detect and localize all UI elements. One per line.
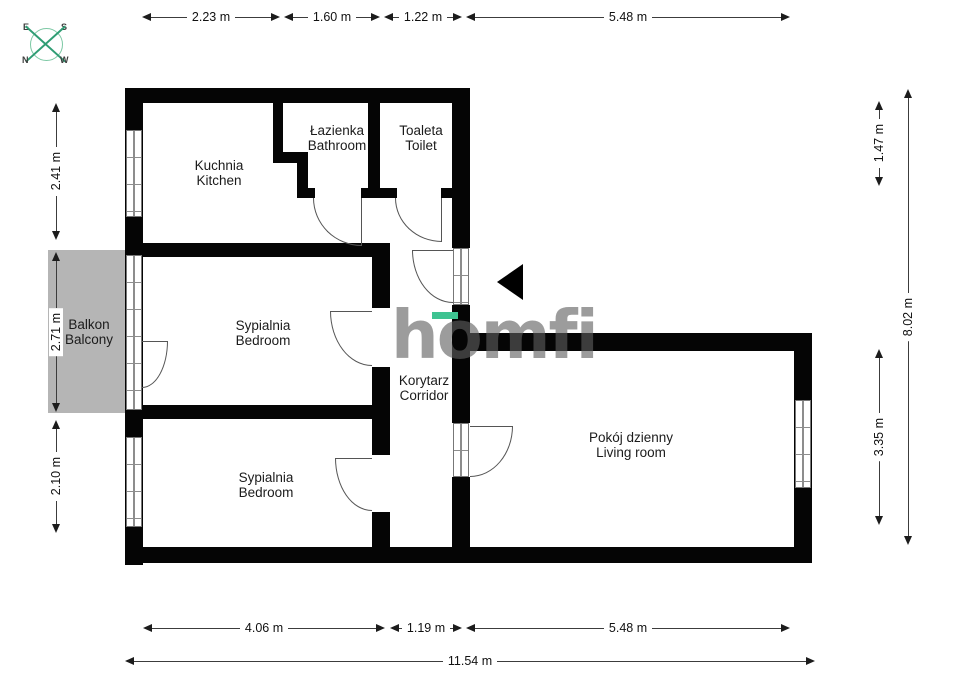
wall-toilet-bottom [441,188,463,198]
dim-bottom-corridor: 1.19 m [390,620,462,636]
dim-label: 5.48 m [604,621,652,635]
dim-total-width: 11.54 m [125,653,815,669]
room-name-en: Bedroom [196,485,336,500]
dim-label: 3.35 m [872,413,886,461]
homfi-logo-accent-bar [432,312,458,319]
dim-arrow-down-icon [904,536,912,545]
room-name-en: Toilet [381,138,461,153]
room-name-pl: Sypialnia [196,470,336,485]
dim-arrow-right-icon [371,13,380,21]
kitchen-window [126,130,142,217]
dim-line [879,110,880,119]
dim-arrow-left-icon [143,624,152,632]
wall-bedroom-corridor [372,512,390,559]
dim-line [235,17,271,18]
dim-bottom-living: 5.48 m [466,620,790,636]
room-label-kitchen: Kuchnia Kitchen [149,158,289,188]
dim-label: 2.41 m [49,147,63,195]
balcony-door-swing [142,341,168,388]
compass-north-label: N [22,55,29,65]
room-name-pl: Sypialnia [193,318,333,333]
dim-line [475,17,604,18]
room-name-pl: Pokój dzienny [556,430,706,445]
room-name-pl: Balkon [48,317,130,332]
wall-bedroom-corridor [372,243,390,308]
dim-arrow-right-icon [376,624,385,632]
room-label-living-room: Pokój dzienny Living room [556,430,706,460]
dim-line [151,17,187,18]
homfi-logo: homfi [391,296,597,374]
dim-line [356,17,371,18]
room-name-pl: Łazienka [287,123,387,138]
dim-left-kitchen: 2.41 m [48,103,64,240]
room-name-pl: Toaleta [381,123,461,138]
bedroom1-door [330,311,372,366]
dim-arrow-left-icon [466,624,475,632]
dim-top-bathroom: 1.60 m [284,9,380,25]
dim-arrow-right-icon [806,657,815,665]
toilet-door [395,198,442,242]
floor-plan: E S N W Kuchnia Kitchen [0,0,960,679]
compass-rose-icon: E S N W [18,22,76,70]
dim-arrow-up-icon [52,252,60,261]
dim-line [56,112,57,147]
dim-label: 2.10 m [49,452,63,500]
compass-west-label: W [60,55,69,65]
dim-arrow-right-icon [271,13,280,21]
dim-line [134,661,443,662]
dim-label: 2.23 m [187,10,235,24]
dim-label: 5.48 m [604,10,652,24]
dim-label: 8.02 m [901,293,915,341]
dim-arrow-down-icon [52,403,60,412]
dim-arrow-up-icon [52,420,60,429]
dim-arrow-left-icon [142,13,151,21]
room-name-en: Living room [556,445,706,460]
dim-line [56,196,57,231]
dim-line [288,628,376,629]
dim-arrow-right-icon [781,624,790,632]
room-name-en: Corridor [374,388,474,403]
dim-line [497,661,806,662]
dim-top-toilet: 1.22 m [384,9,462,25]
dim-line [475,628,604,629]
dim-left-bedroom2: 2.10 m [48,420,64,533]
dim-arrow-up-icon [875,101,883,110]
room-label-bedroom2: Sypialnia Bedroom [196,470,336,500]
dim-arrow-up-icon [904,89,912,98]
dim-right-total-height: 8.02 m [900,89,916,545]
wall-right-upper [452,88,470,248]
dim-right-toilet: 1.47 m [871,101,887,186]
dim-arrow-down-icon [875,177,883,186]
dim-label: 1.22 m [399,10,447,24]
room-name-pl: Kuchnia [149,158,289,173]
entrance-arrow-icon [497,264,523,300]
room-label-bathroom: Łazienka Bathroom [287,123,387,153]
dim-line [879,168,880,177]
dim-arrow-left-icon [384,13,393,21]
dim-line [152,628,240,629]
room-name-en: Kitchen [149,173,289,188]
dim-line [56,356,57,403]
dim-line [908,98,909,293]
dim-line [879,461,880,516]
wall-bedroom1-top [125,243,390,257]
dim-arrow-left-icon [466,13,475,21]
bathroom-door [313,198,362,246]
living-room-door [470,426,513,477]
room-name-en: Bedroom [193,333,333,348]
room-label-bedroom1: Sypialnia Bedroom [193,318,333,348]
wall-bathroom-bottom [297,188,315,198]
dim-arrow-down-icon [52,524,60,533]
dim-arrow-right-icon [781,13,790,21]
dim-label: 11.54 m [443,654,497,668]
dim-arrow-up-icon [52,103,60,112]
dim-bottom-bedroom: 4.06 m [143,620,385,636]
wall-kitchen-bathroom [273,88,283,162]
room-name-pl: Korytarz [374,373,474,388]
dim-label: 1.60 m [308,10,356,24]
dim-top-kitchen: 2.23 m [142,9,280,25]
dim-line [908,341,909,536]
room-label-balcony: Balkon Balcony [48,317,130,347]
room-label-toilet: Toaleta Toilet [381,123,461,153]
dim-line [56,501,57,524]
room-label-corridor: Korytarz Corridor [374,373,474,403]
dim-line [293,17,308,18]
dim-label: 1.47 m [872,119,886,167]
living-room-door-frame [453,423,469,477]
dim-arrow-left-icon [125,657,134,665]
dim-label: 1.19 m [402,621,450,635]
wall-right-lower [452,477,470,563]
wall-bedroom-divider [125,405,390,419]
dim-arrow-left-icon [284,13,293,21]
wall-top [125,88,470,103]
dim-label: 4.06 m [240,621,288,635]
bedroom2-door [335,458,372,511]
room-name-en: Balcony [48,332,130,347]
dim-arrow-up-icon [875,349,883,358]
dim-arrow-down-icon [875,516,883,525]
dim-line [879,358,880,413]
dim-arrow-down-icon [52,231,60,240]
living-room-window [795,400,811,488]
dim-top-living: 5.48 m [466,9,790,25]
dim-line [652,17,781,18]
dim-right-living: 3.35 m [871,349,887,525]
dim-line [652,628,781,629]
dim-line [56,261,57,308]
dim-line [56,429,57,452]
room-name-en: Bathroom [287,138,387,153]
dim-arrow-right-icon [453,13,462,21]
bedroom2-window [126,437,142,527]
dim-arrow-left-icon [390,624,399,632]
dim-arrow-right-icon [453,624,462,632]
